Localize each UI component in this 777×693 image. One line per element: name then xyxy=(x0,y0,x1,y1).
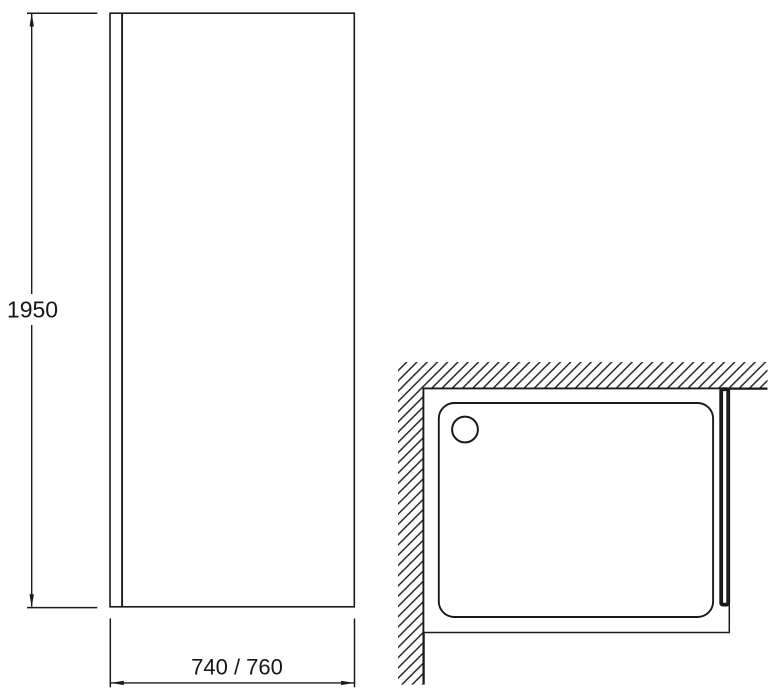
svg-text:740 / 760: 740 / 760 xyxy=(191,654,283,679)
svg-text:1950: 1950 xyxy=(7,297,58,323)
